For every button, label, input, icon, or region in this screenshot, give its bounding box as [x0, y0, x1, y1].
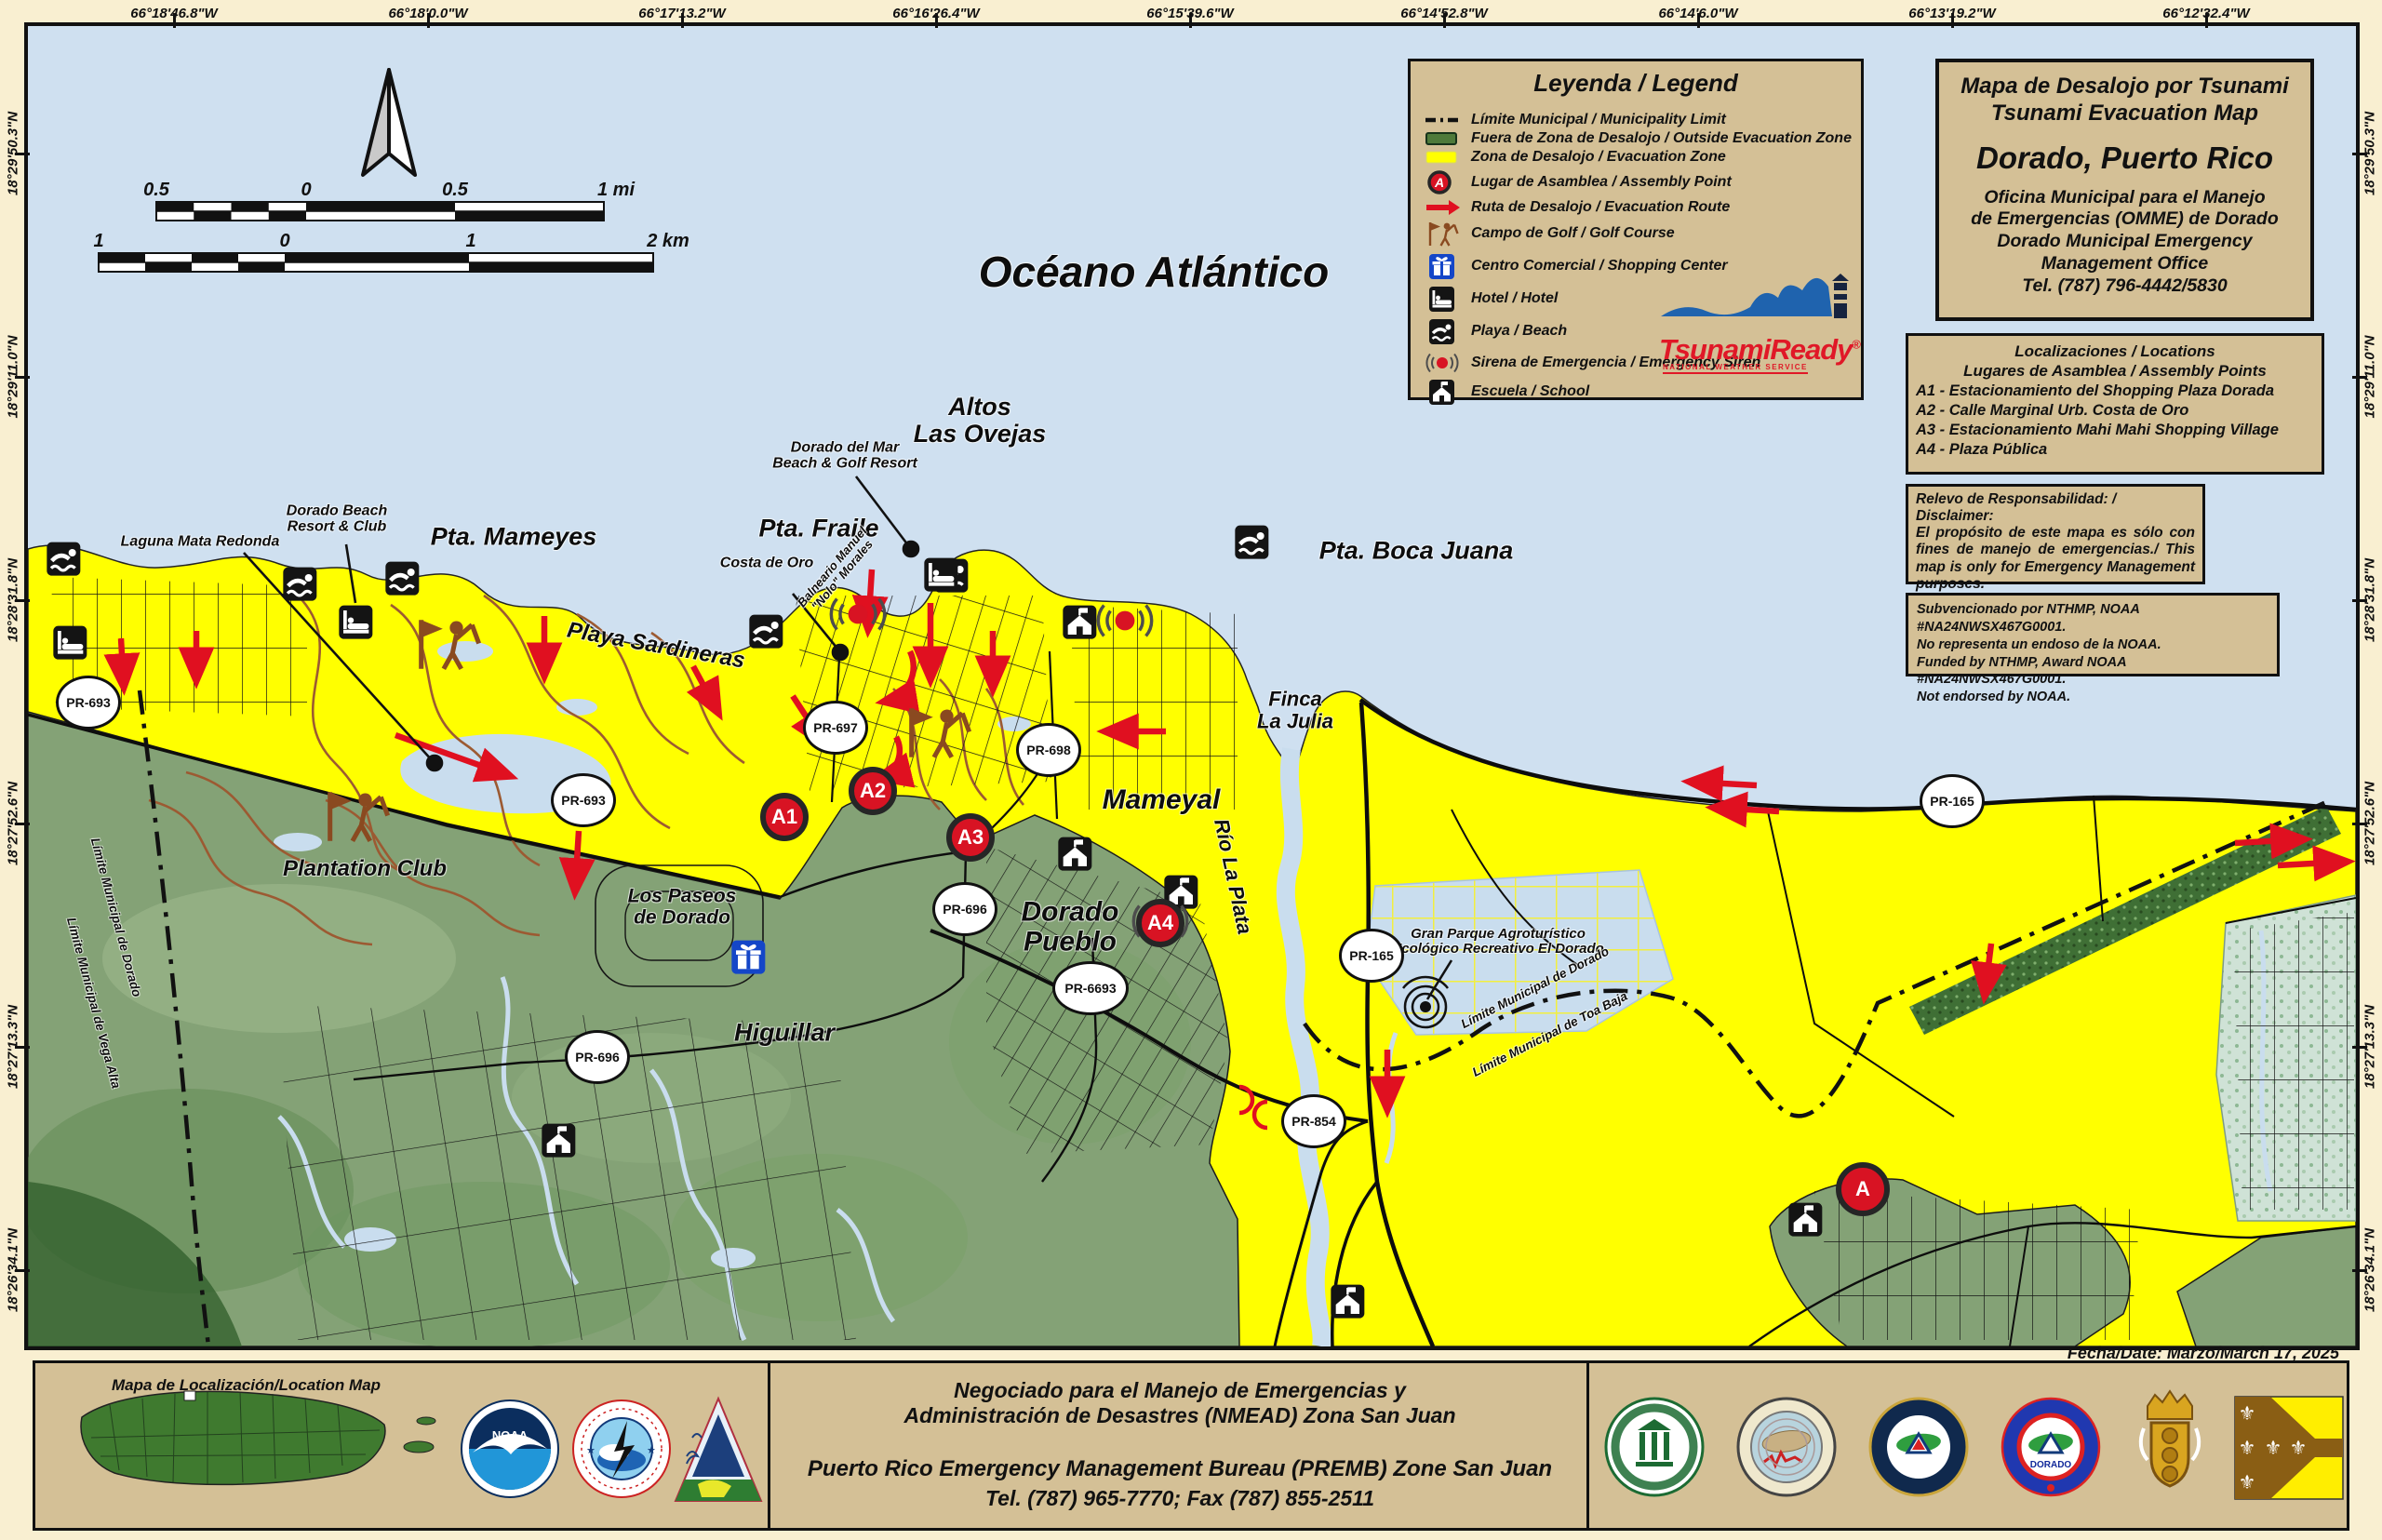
- legend-item-label: Hotel / Hotel: [1471, 290, 1558, 307]
- legend-box: Leyenda / Legend Límite Municipal / Muni…: [1408, 59, 1864, 400]
- shopping-center-icon: [1422, 252, 1463, 280]
- location-item-a2: A2 - Calle Marginal Urb. Costa de Oro: [1916, 401, 2314, 421]
- coordinate-label-left: 18°27'13.3"N: [6, 1005, 21, 1089]
- map-title-es: Mapa de Desalojo por Tsunami: [1939, 74, 2310, 100]
- svg-text:★: ★: [586, 1444, 595, 1456]
- school-icon: [1422, 378, 1463, 406]
- tsunamiready-brand: TsunamiReady®: [1657, 333, 1862, 367]
- bottom-left-panel: NOAA ★ ★: [35, 1363, 765, 1528]
- title-box: Mapa de Desalojo por Tsunami Tsunami Eva…: [1935, 59, 2314, 321]
- bottom-credits-bar: Mapa de Localización/Location Map NOAA: [33, 1360, 2349, 1531]
- coordinate-label-right: 18°29'50.3"N: [2362, 112, 2378, 195]
- agency-credits: Negociado para el Manejo de Emergencias …: [770, 1363, 1589, 1528]
- funding-line: Funded by NTHMP, Award NOAA #NA24NWSX467…: [1917, 654, 2268, 690]
- red-sismica-logo: [1738, 1399, 1835, 1495]
- tsunamiready-logo: TsunamiReady® NATIONAL WEATHER SERVICE: [1657, 274, 1864, 376]
- office-info: Oficina Municipal para el Manejo de Emer…: [1939, 187, 2310, 298]
- scale-bar-miles: [156, 202, 604, 221]
- disclaimer-title: Relevo de Responsabilidad: / Disclaimer:: [1916, 491, 2195, 525]
- coordinate-label-top: 66°13'19.2"W: [1908, 6, 1995, 21]
- locations-title: Localizaciones / Locations: [1916, 341, 2314, 361]
- credit-line: Negociado para el Manejo de Emergencias …: [770, 1378, 1589, 1403]
- svg-text:★: ★: [647, 1444, 656, 1456]
- beach-icon: [47, 542, 80, 576]
- svg-text:DORADO: DORADO: [2030, 1460, 2072, 1470]
- coordinate-label-top: 66°18'0.0"W: [388, 6, 467, 21]
- map-city: Dorado, Puerto Rico: [1939, 141, 2310, 176]
- legend-item-label: Zona de Desalojo / Evacuation Zone: [1471, 149, 1726, 166]
- evacuation-route-icon: [1422, 194, 1463, 221]
- school-icon: [1331, 1285, 1364, 1319]
- legend-title: Leyenda / Legend: [1411, 69, 1861, 98]
- uprm-seal-logo: [1606, 1399, 1703, 1495]
- legend-item-evacuation-zone: Zona de Desalojo / Evacuation Zone: [1422, 145, 1726, 169]
- hotel-icon: [53, 626, 87, 660]
- tsunami-evacuation-map-page: A: [0, 0, 2382, 1540]
- svg-text:⚜: ⚜: [2290, 1437, 2308, 1459]
- coordinate-label-left: 18°29'11.0"N: [6, 336, 21, 419]
- coordinate-label-top: 66°18'46.8"W: [130, 6, 217, 21]
- coordinate-label-top: 66°15'39.6"W: [1146, 6, 1233, 21]
- location-item-a1: A1 - Estacionamiento del Shopping Plaza …: [1916, 382, 2314, 401]
- credit-line: Puerto Rico Emergency Management Bureau …: [770, 1456, 1589, 1482]
- nws-logo: ★ ★: [573, 1400, 670, 1497]
- disclaimer-box: Relevo de Responsabilidad: / Disclaimer:…: [1906, 484, 2205, 584]
- pr-location-map: [81, 1391, 435, 1484]
- shopping-center-icon: [731, 941, 765, 974]
- coordinate-label-top: 66°12'32.4"W: [2162, 6, 2249, 21]
- location-item-a3: A3 - Estacionamiento Mahi Mahi Shopping …: [1916, 421, 2314, 440]
- legend-item-label: Playa / Beach: [1471, 323, 1567, 340]
- disclaimer-body: El propósito de este mapa es sólo con fi…: [1916, 525, 2195, 593]
- legend-item-label: Escuela / School: [1471, 383, 1589, 400]
- coordinate-label-top: 66°14'52.8"W: [1400, 6, 1487, 21]
- beach-icon: [1235, 526, 1268, 559]
- nmead-seal-logo: [1870, 1399, 1967, 1495]
- map-title-en: Tsunami Evacuation Map: [1939, 100, 2310, 127]
- legend-item-label: Campo de Golf / Golf Course: [1471, 225, 1675, 242]
- legend-item-golf-course: Campo de Golf / Golf Course: [1422, 221, 1675, 246]
- coordinate-label-left: 18°27'52.6"N: [6, 782, 21, 865]
- tsunamiready-pyramid-logo: [676, 1399, 761, 1501]
- coordinate-label-left: 18°26'34.1"N: [6, 1228, 21, 1312]
- svg-text:NOAA: NOAA: [492, 1428, 529, 1442]
- coordinate-label-right: 18°27'52.6"N: [2362, 782, 2378, 865]
- legend-item-label: Ruta de Desalojo / Evacuation Route: [1471, 199, 1730, 216]
- tsunamiready-tagline: NATIONAL WEATHER SERVICE: [1663, 363, 1808, 374]
- legend-item-school: Escuela / School: [1422, 380, 1589, 404]
- omme-dorado-logo: DORADO: [2002, 1399, 2099, 1495]
- school-icon: [542, 1124, 575, 1158]
- beach-icon: [749, 615, 783, 649]
- coordinate-label-right: 18°29'11.0"N: [2362, 336, 2378, 419]
- svg-text:⚜: ⚜: [2239, 1402, 2256, 1425]
- coordinate-label-right: 18°28'31.8"N: [2362, 558, 2378, 642]
- coordinate-label-right: 18°26'34.1"N: [2362, 1228, 2378, 1312]
- credit-line: Administración de Desastres (NMEAD) Zona…: [770, 1403, 1589, 1428]
- beach-icon: [1422, 317, 1463, 345]
- beach-icon: [283, 568, 316, 601]
- school-icon: [1058, 837, 1091, 871]
- dorado-coat-of-arms: [2141, 1391, 2199, 1486]
- legend-item-beach: Playa / Beach: [1422, 319, 1567, 343]
- coordinate-label-left: 18°28'31.8"N: [6, 558, 21, 642]
- hotel-icon: [339, 606, 372, 639]
- svg-text:⚜: ⚜: [2239, 1471, 2256, 1493]
- legend-item-evacuation-route: Ruta de Desalojo / Evacuation Route: [1422, 195, 1730, 220]
- school-icon: [1164, 876, 1198, 909]
- legend-item-label: Lugar de Asamblea / Assembly Point: [1471, 174, 1732, 191]
- coordinate-label-top: 66°16'26.4"W: [892, 6, 979, 21]
- tsunamiready-wave-icon: [1657, 274, 1864, 333]
- coordinate-label-top: 66°14'6.0"W: [1658, 6, 1737, 21]
- location-item-a4: A4 - Plaza Pública: [1916, 440, 2314, 460]
- evacuation-zone-icon: [1422, 143, 1463, 171]
- school-icon: [1063, 606, 1096, 639]
- funding-line: Subvencionado por NTHMP, NOAA #NA24NWSX4…: [1917, 601, 2268, 636]
- emergency-siren-icon: [1422, 349, 1463, 377]
- beach-icon: [385, 562, 419, 596]
- assembly-point-icon: [1422, 168, 1463, 196]
- scale-bar-km: [99, 253, 653, 272]
- hotel-icon: [924, 558, 957, 592]
- coordinate-label-left: 18°29'50.3"N: [6, 112, 21, 195]
- funding-box: Subvencionado por NTHMP, NOAA #NA24NWSX4…: [1906, 593, 2280, 676]
- bottom-right-panel: DORADO ⚜⚜⚜ ⚜⚜: [1589, 1363, 2352, 1528]
- svg-text:⚜: ⚜: [2265, 1437, 2282, 1459]
- dorado-flag: ⚜⚜⚜ ⚜⚜: [2235, 1397, 2343, 1499]
- golf-course-icon: [1422, 220, 1463, 248]
- coordinate-label-top: 66°17'13.2"W: [638, 6, 725, 21]
- legend-item-label: Centro Comercial / Shopping Center: [1471, 258, 1728, 275]
- noaa-logo: NOAA: [462, 1400, 558, 1497]
- locations-subtitle: Lugares de Asamblea / Assembly Points: [1916, 361, 2314, 381]
- svg-text:⚜: ⚜: [2239, 1437, 2256, 1459]
- locations-box: Localizaciones / Locations Lugares de As…: [1906, 333, 2324, 475]
- legend-item-assembly-point: Lugar de Asamblea / Assembly Point: [1422, 170, 1732, 194]
- hotel-icon: [1422, 285, 1463, 313]
- funding-line: Not endorsed by NOAA.: [1917, 689, 2268, 706]
- credit-line: Tel. (787) 965-7770; Fax (787) 855-2511: [770, 1486, 1589, 1511]
- school-icon: [1788, 1203, 1822, 1237]
- funding-line: No representa un endoso de la NOAA.: [1917, 636, 2268, 654]
- coordinate-label-right: 18°27'13.3"N: [2362, 1005, 2378, 1089]
- legend-item-hotel: Hotel / Hotel: [1422, 287, 1558, 311]
